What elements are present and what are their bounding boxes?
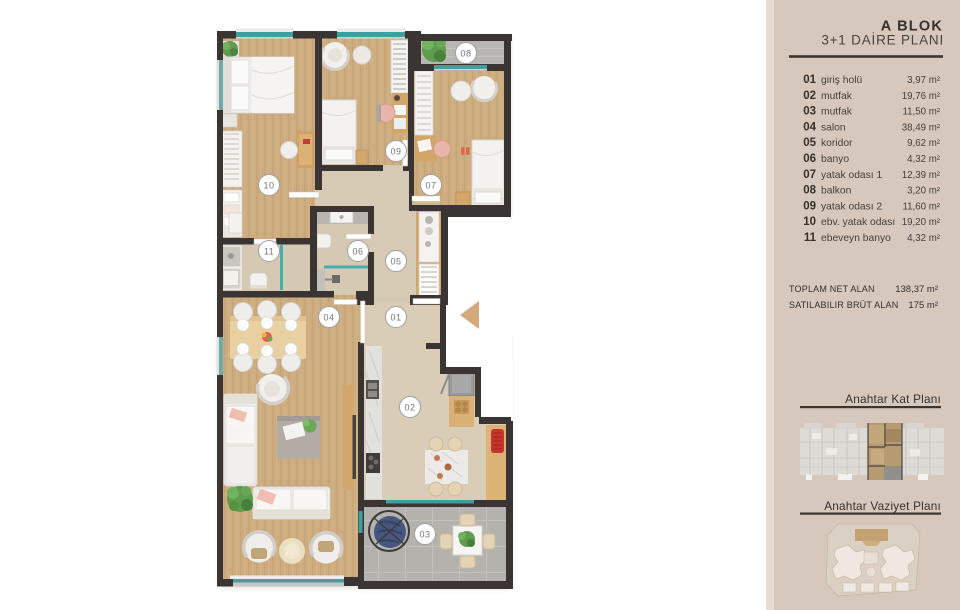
svg-text:9,62 m²: 9,62 m² (907, 138, 941, 149)
svg-text:11,50 m²: 11,50 m² (902, 107, 940, 118)
svg-text:mutfak: mutfak (821, 91, 853, 102)
svg-text:ebeveyn banyo: ebeveyn banyo (821, 233, 891, 244)
svg-text:09: 09 (390, 147, 401, 157)
svg-text:11,60 m²: 11,60 m² (902, 201, 940, 212)
svg-text:03: 03 (803, 106, 816, 118)
svg-text:11: 11 (804, 232, 817, 244)
svg-text:yatak odası 2: yatak odası 2 (821, 201, 883, 212)
svg-text:01: 01 (390, 313, 401, 323)
svg-text:ebv. yatak odası: ebv. yatak odası (821, 217, 895, 228)
svg-text:06: 06 (352, 247, 363, 257)
svg-text:09: 09 (803, 200, 816, 212)
svg-text:10: 10 (803, 216, 816, 228)
svg-text:03: 03 (419, 530, 430, 540)
svg-text:05: 05 (390, 257, 401, 267)
svg-text:yatak odası 1: yatak odası 1 (821, 170, 883, 181)
svg-text:175 m²: 175 m² (908, 300, 938, 311)
svg-text:12,39 m²: 12,39 m² (902, 170, 941, 181)
svg-text:salon: salon (821, 122, 846, 133)
svg-text:giriş holü: giriş holü (821, 75, 862, 86)
svg-text:19,76 m²: 19,76 m² (902, 91, 941, 102)
svg-text:balkon: balkon (821, 186, 852, 197)
svg-text:4,32 m²: 4,32 m² (907, 233, 941, 244)
svg-text:02: 02 (803, 90, 816, 102)
svg-text:04: 04 (323, 313, 334, 323)
svg-text:04: 04 (803, 121, 816, 133)
svg-text:06: 06 (803, 153, 816, 165)
svg-text:Anahtar Vaziyet Planı: Anahtar Vaziyet Planı (824, 499, 941, 513)
svg-text:05: 05 (803, 137, 816, 149)
svg-text:10: 10 (263, 181, 274, 191)
svg-text:08: 08 (803, 185, 816, 197)
svg-text:koridor: koridor (821, 138, 853, 149)
svg-text:banyo: banyo (821, 154, 849, 165)
svg-text:3+1 DAİRE PLANI: 3+1 DAİRE PLANI (821, 33, 944, 48)
svg-text:3,20 m²: 3,20 m² (907, 186, 941, 197)
svg-text:02: 02 (404, 403, 415, 413)
svg-text:SATILABILIR BRÜT ALAN: SATILABILIR BRÜT ALAN (789, 300, 898, 310)
svg-text:01: 01 (803, 74, 816, 86)
svg-text:TOPLAM NET ALAN: TOPLAM NET ALAN (789, 284, 875, 294)
svg-text:138,37 m²: 138,37 m² (895, 284, 938, 295)
svg-text:11: 11 (264, 247, 274, 257)
svg-text:08: 08 (460, 49, 471, 59)
svg-text:Anahtar Kat Planı: Anahtar Kat Planı (845, 392, 941, 406)
svg-text:3,97 m²: 3,97 m² (907, 75, 941, 86)
svg-text:38,49 m²: 38,49 m² (902, 122, 941, 133)
svg-text:mutfak: mutfak (821, 107, 853, 118)
svg-text:07: 07 (803, 169, 816, 181)
svg-text:07: 07 (425, 181, 436, 191)
svg-text:19,20 m²: 19,20 m² (902, 217, 941, 228)
svg-text:4,32 m²: 4,32 m² (907, 154, 941, 165)
